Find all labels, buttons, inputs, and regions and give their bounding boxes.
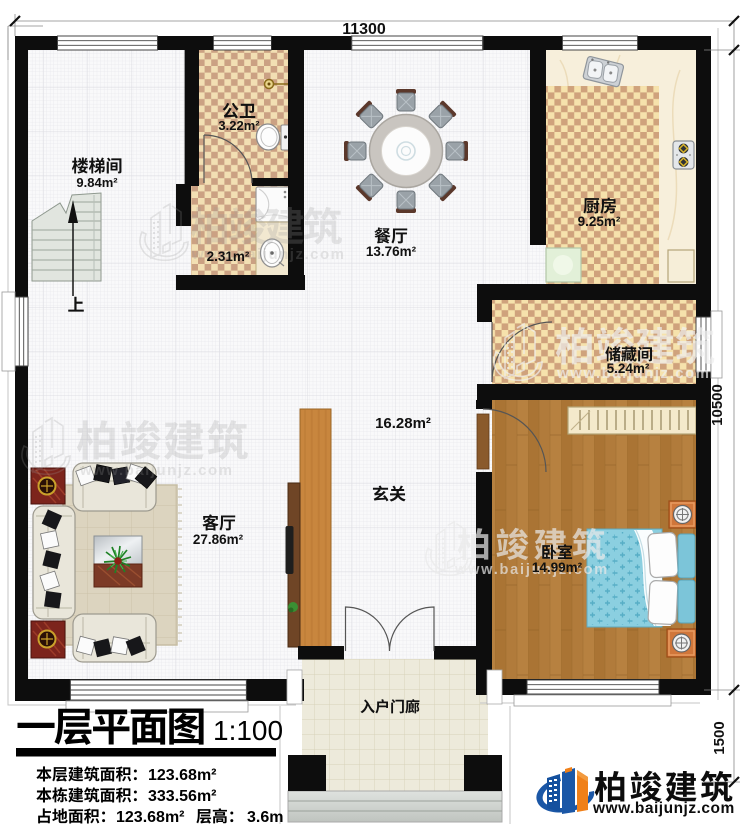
svg-text:123.68m²: 123.68m² bbox=[116, 809, 185, 826]
svg-text:16.28m²: 16.28m² bbox=[375, 415, 431, 432]
svg-text:9.84m²: 9.84m² bbox=[76, 175, 118, 190]
svg-text:5.24m²: 5.24m² bbox=[607, 361, 650, 376]
svg-text:123.68m²: 123.68m² bbox=[148, 767, 217, 784]
svg-text:www.baijunjz.com: www.baijunjz.com bbox=[79, 462, 233, 479]
svg-text:27.86m²: 27.86m² bbox=[193, 532, 244, 547]
svg-text:3.6m: 3.6m bbox=[247, 809, 283, 826]
svg-text:www.baijunjz.com: www.baijunjz.com bbox=[592, 800, 735, 817]
svg-text:11300: 11300 bbox=[342, 21, 386, 38]
svg-text:333.56m²: 333.56m² bbox=[148, 788, 217, 805]
svg-text:9.25m²: 9.25m² bbox=[578, 214, 621, 229]
svg-text:10500: 10500 bbox=[709, 384, 726, 426]
svg-text:2.31m²: 2.31m² bbox=[207, 249, 250, 264]
svg-text:1500: 1500 bbox=[711, 721, 728, 754]
svg-text:13.76m²: 13.76m² bbox=[366, 244, 417, 259]
svg-text:14.99m²: 14.99m² bbox=[532, 560, 583, 575]
svg-text:1:100: 1:100 bbox=[213, 715, 283, 746]
svg-text:3.22m²: 3.22m² bbox=[218, 118, 260, 133]
